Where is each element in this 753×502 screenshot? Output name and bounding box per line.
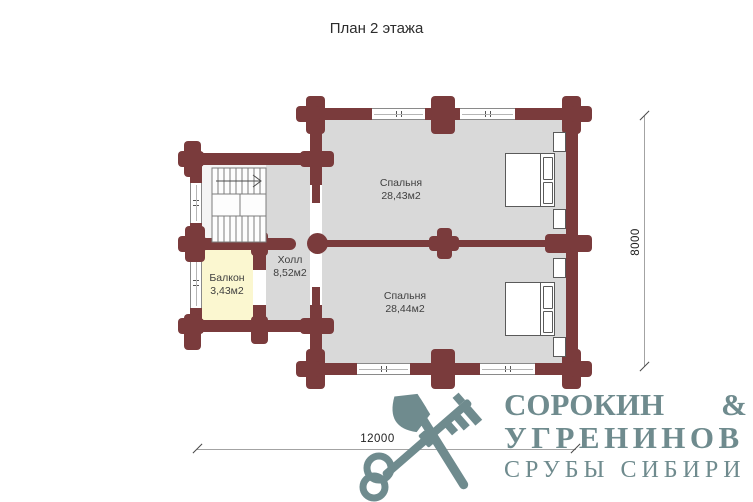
bed-2 xyxy=(505,282,555,336)
log-end xyxy=(437,228,452,259)
room-name: Спальня xyxy=(344,290,466,303)
room-name: Балкон xyxy=(196,272,258,285)
bed-1 xyxy=(505,153,555,207)
floor-plan-page: План 2 этажа xyxy=(0,0,753,502)
window-opening xyxy=(460,108,515,120)
log-end xyxy=(178,318,204,334)
logo-tagline: СРУБЫ СИБИРИ xyxy=(504,456,747,484)
nightstand xyxy=(553,337,566,357)
log-end xyxy=(570,235,592,252)
nightstand xyxy=(553,209,566,229)
pillow xyxy=(543,286,553,309)
log-end xyxy=(570,106,592,122)
wall-jamb-upper xyxy=(312,185,320,203)
room-balcony-label: Балкон 3,43м2 xyxy=(196,272,258,298)
room-bedroom-1-label: Спальня 28,43м2 xyxy=(340,177,462,203)
window-opening xyxy=(372,108,425,120)
logo-name-line1: СОРОКИН & xyxy=(504,388,747,421)
room-bedroom-2-label: Спальня 28,44м2 xyxy=(344,290,466,316)
room-area: 28,43м2 xyxy=(340,190,462,203)
log-end xyxy=(300,151,334,167)
log-end xyxy=(431,96,455,134)
nightstand xyxy=(553,132,566,152)
wall-jamb-lower xyxy=(312,287,320,305)
logo-name-line2: УГРЕНИНОВ xyxy=(504,421,747,455)
log-end xyxy=(570,361,592,377)
window-opening xyxy=(357,363,410,375)
log-end xyxy=(300,318,334,334)
door-opening-bedroom1 xyxy=(310,203,322,237)
log-end xyxy=(296,361,320,377)
room-area: 3,43м2 xyxy=(196,285,258,298)
room-name: Спальня xyxy=(340,177,462,190)
dim-height-label: 8000 xyxy=(630,220,642,264)
log-end xyxy=(545,234,571,253)
pillow xyxy=(543,182,553,204)
pillow xyxy=(543,311,553,333)
logo: СОРОКИН & УГРЕНИНОВ СРУБЫ СИБИРИ xyxy=(504,388,747,484)
log-end xyxy=(296,106,320,122)
pillow xyxy=(543,157,553,180)
axe-key-logo-icon xyxy=(350,382,515,502)
log-column-post xyxy=(307,233,328,254)
logo-word1: СОРОКИН xyxy=(504,388,664,421)
room-name: Холл xyxy=(255,254,325,267)
room-area: 28,44м2 xyxy=(344,303,466,316)
staircase xyxy=(200,164,268,246)
room-hall-label: Холл 8,52м2 xyxy=(255,254,325,280)
room-area: 8,52м2 xyxy=(255,267,325,280)
page-title: План 2 этажа xyxy=(0,20,753,37)
log-end xyxy=(251,316,268,344)
dimension-line-vertical xyxy=(644,116,645,367)
logo-ampersand: & xyxy=(721,388,747,421)
window-opening xyxy=(480,363,535,375)
nightstand xyxy=(553,258,566,278)
